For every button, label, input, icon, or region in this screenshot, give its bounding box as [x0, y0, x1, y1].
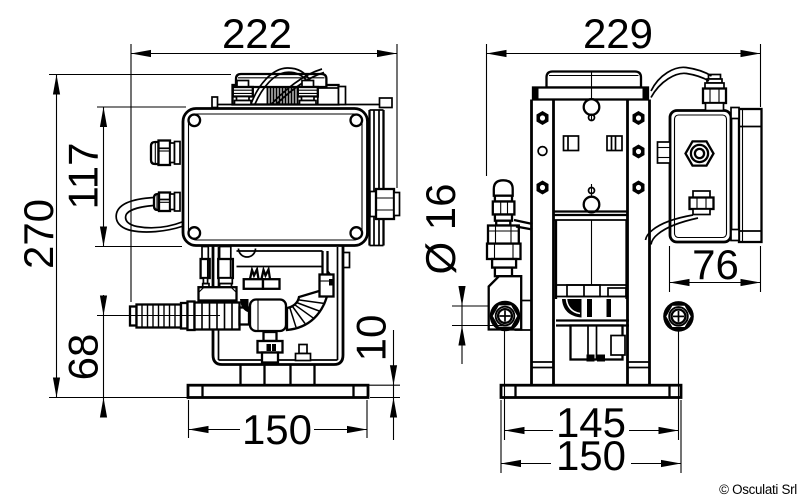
svg-text:10: 10: [348, 315, 395, 362]
svg-text:270: 270: [15, 199, 62, 269]
svg-text:150: 150: [242, 406, 312, 453]
svg-text:68: 68: [60, 334, 107, 381]
svg-text:229: 229: [583, 10, 653, 57]
svg-text:© Osculati Srl: © Osculati Srl: [719, 482, 797, 497]
svg-text:76: 76: [692, 241, 739, 288]
svg-text:150: 150: [556, 432, 626, 479]
svg-text:117: 117: [60, 143, 107, 210]
svg-text:222: 222: [222, 10, 292, 57]
svg-text:Ø 16: Ø 16: [417, 183, 464, 274]
